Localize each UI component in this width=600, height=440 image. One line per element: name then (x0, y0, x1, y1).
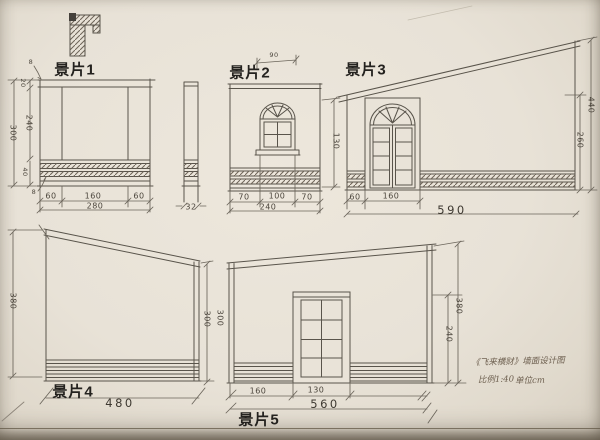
double-door-with-fanlight (365, 98, 420, 190)
p2-dim-top-width: 90 (269, 51, 278, 59)
panel-5-label: 景片5 (238, 409, 279, 430)
p4-dim-bottom-total: 480 (105, 396, 134, 410)
p3-dim-bottom-total: 590 (437, 203, 466, 217)
p1-dim-bottom-right: 60 (133, 192, 144, 201)
panel-3-label: 景片3 (345, 59, 386, 80)
arched-window (255, 103, 300, 155)
panel-2-label: 景片2 (229, 62, 270, 83)
panel-1-dimension-lines (8, 66, 206, 213)
panel-5-drawing (227, 244, 436, 383)
panel-2-drawing (228, 84, 322, 192)
title-block-title: 《飞来横财》墙面设计图 (471, 354, 565, 368)
p5-dim-bottom-door: 130 (308, 386, 325, 395)
p5-dim-height-right: 380 (455, 298, 464, 315)
paper-bottom-edge-shadow (0, 428, 600, 440)
p1-dim-bottom-left: 60 (45, 192, 56, 201)
panel-4-label: 景片4 (52, 381, 93, 402)
p3-dim-height-right: 440 (587, 97, 596, 114)
p1-dim-return-width: 32 (185, 203, 196, 212)
p1-dim-skirting-height: 40 (21, 167, 29, 176)
p5-dim-height-inner: 240 (445, 326, 454, 343)
p3-dim-bottom-door: 160 (383, 192, 400, 201)
p5-dim-bottom-left: 160 (250, 387, 267, 396)
glazed-door (293, 292, 350, 383)
sketch-page: 景片1 景片2 景片3 景片4 景片5 300 240 20 8 40 8 60… (0, 0, 600, 440)
p2-dim-bottom-total: 240 (260, 203, 277, 212)
p5-dim-bottom-total: 560 (310, 397, 339, 411)
p2-dim-bottom-left: 70 (238, 193, 249, 202)
p4-dim-height-right: 300 (203, 311, 212, 328)
title-block-scale: 比例1:40 (478, 373, 514, 386)
panel-4-drawing (44, 229, 201, 381)
p1-dim-bottom-mid: 160 (85, 192, 102, 201)
p1-dim-height-total: 300 (9, 125, 18, 142)
p1-dim-height-mid: 240 (25, 115, 34, 132)
p3-dim-height-left: 260 (576, 132, 585, 149)
p4-dim-height-left: 380 (9, 293, 18, 310)
p1-dim-top-rail: 20 (19, 78, 27, 87)
p2-dim-bottom-mid: 100 (269, 192, 286, 201)
panel-1-label: 景片1 (54, 59, 95, 80)
p2-dim-bottom-right: 70 (301, 193, 312, 202)
p3-dim-bottom-left: 60 (349, 193, 360, 202)
panel-1-drawing (37, 79, 155, 186)
p2-dim-window-height: 130 (332, 133, 341, 150)
title-block-unit: 单位cm (515, 374, 545, 387)
p5-dim-height-left: 300 (216, 310, 225, 327)
p1-dim-thickness-skirting: 8 (32, 188, 37, 196)
panel-1-side-return (182, 82, 200, 202)
p1-dim-thickness-top: 8 (29, 58, 34, 66)
p1-dim-bottom-total: 280 (87, 202, 104, 211)
corner-section-detail (69, 13, 100, 56)
